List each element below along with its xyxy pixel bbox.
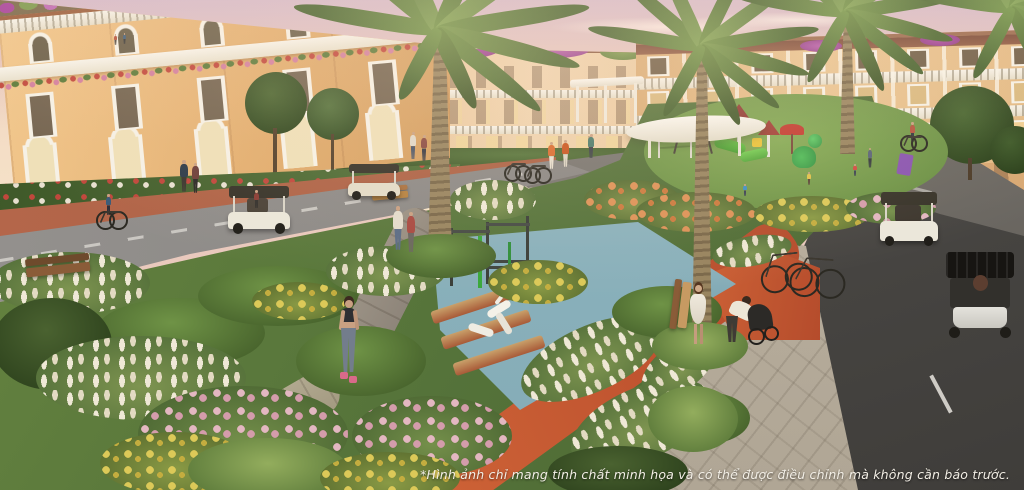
pedestrian (408, 132, 418, 163)
bicycle (900, 134, 928, 152)
runner (586, 134, 596, 161)
runner (560, 140, 571, 170)
balcony-person (122, 33, 127, 45)
jogger-woman (334, 296, 362, 390)
rendering-scene: *Hình ảnh chỉ mang tính chất minh họa và… (0, 0, 1024, 490)
man-with-stroller (722, 292, 774, 352)
disclaimer-text: *Hình ảnh chỉ mang tính chất minh họa và… (420, 467, 1010, 482)
balcony-person (113, 34, 118, 46)
golf-cart (880, 192, 938, 246)
woman-white-dress (686, 282, 708, 348)
pedestrian (419, 135, 429, 164)
cart-driver (252, 190, 261, 210)
walking-couple-woman (404, 212, 418, 258)
palm-grass (648, 386, 738, 452)
child (852, 164, 858, 177)
flower-bed (488, 260, 588, 304)
pedestrian (190, 163, 201, 197)
child (742, 184, 748, 197)
dragon-play-structure (792, 146, 816, 168)
golf-cart (348, 164, 400, 200)
runner (546, 142, 557, 172)
pedestrian (178, 160, 190, 196)
golf-cart-dark (946, 252, 1014, 340)
pampas-bed (450, 180, 536, 220)
parent (866, 148, 874, 170)
parked-bicycle (788, 250, 847, 300)
child (806, 172, 812, 186)
flower-bed (252, 282, 346, 320)
bicycle (96, 208, 128, 230)
